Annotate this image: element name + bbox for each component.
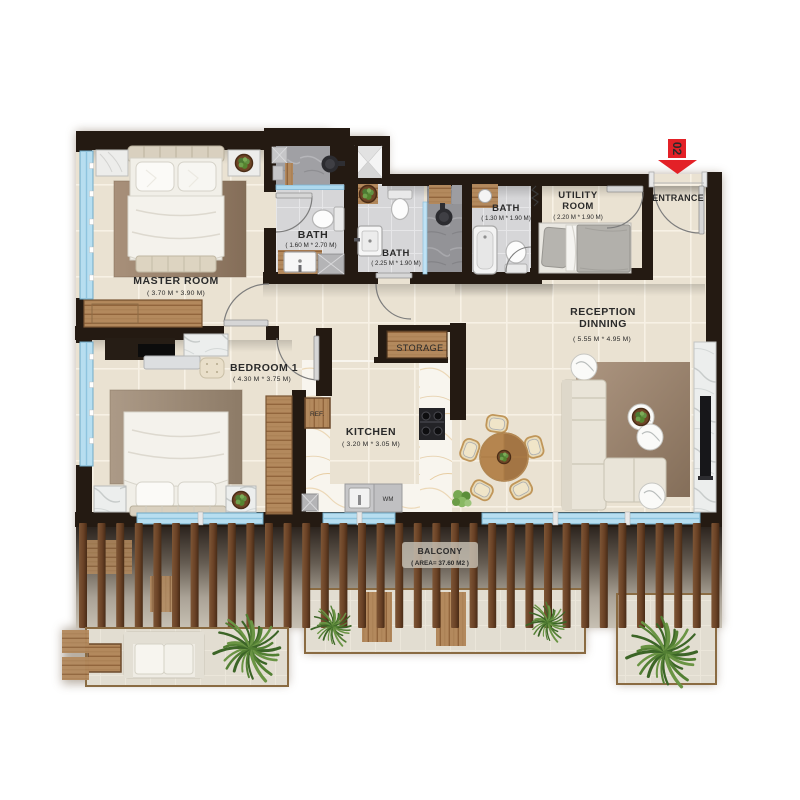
svg-text:ROOM: ROOM	[562, 201, 594, 212]
svg-text:BATH: BATH	[492, 203, 520, 214]
svg-text:DINNING: DINNING	[579, 318, 627, 330]
svg-text:KITCHEN: KITCHEN	[346, 426, 396, 438]
svg-text:UTILITY: UTILITY	[558, 190, 598, 201]
svg-text:MASTER ROOM: MASTER ROOM	[133, 275, 218, 287]
svg-text:BALCONY: BALCONY	[418, 546, 463, 556]
svg-text:RECEPTION: RECEPTION	[570, 306, 636, 318]
svg-text:( 1.60 M * 2.70 M): ( 1.60 M * 2.70 M)	[285, 242, 336, 249]
svg-text:( 2.20 M * 1.90 M): ( 2.20 M * 1.90 M)	[553, 214, 603, 221]
svg-text:( 3.20 M * 3.05 M): ( 3.20 M * 3.05 M)	[342, 441, 400, 448]
svg-text:( 3.70 M * 3.90 M): ( 3.70 M * 3.90 M)	[147, 290, 205, 297]
svg-text:BATH: BATH	[382, 248, 410, 259]
svg-text:( 2.25 M * 1.90 M): ( 2.25 M * 1.90 M)	[371, 260, 421, 267]
svg-text:( 5.55 M * 4.95 M): ( 5.55 M * 4.95 M)	[573, 336, 631, 343]
svg-text:BEDROOM 1: BEDROOM 1	[230, 362, 298, 374]
svg-text:( AREA= 37.60 M2 ): ( AREA= 37.60 M2 )	[411, 560, 469, 567]
svg-text:02: 02	[670, 142, 684, 156]
svg-text:WM: WM	[383, 497, 394, 503]
svg-text:( 4.30 M * 3.75 M): ( 4.30 M * 3.75 M)	[233, 376, 291, 383]
svg-text:BATH: BATH	[298, 229, 328, 241]
svg-text:( 1.30 M * 1.90 M): ( 1.30 M * 1.90 M)	[481, 215, 531, 222]
svg-text:ENTRANCE: ENTRANCE	[652, 193, 704, 203]
svg-text:STORAGE: STORAGE	[396, 343, 443, 353]
svg-text:REF.: REF.	[310, 411, 324, 418]
